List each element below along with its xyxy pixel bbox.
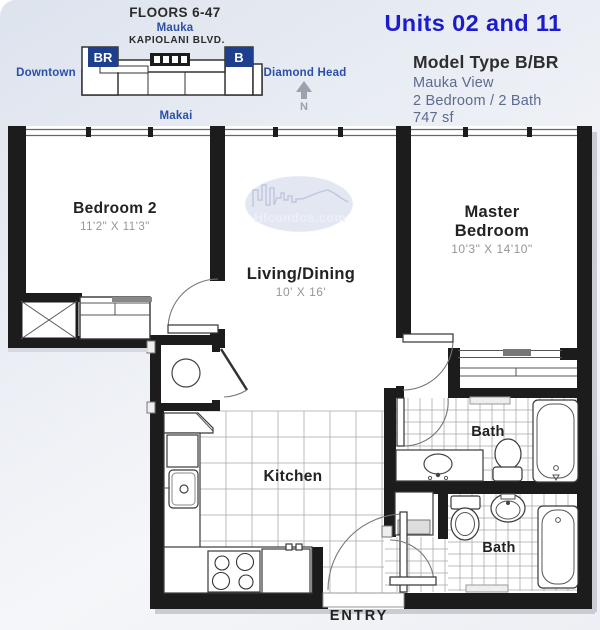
north-label: N xyxy=(300,101,308,113)
closet-slider-panel xyxy=(112,297,152,302)
bed-bath-line: 2 Bedroom / 2 Bath xyxy=(413,93,542,109)
bedroom2-closets xyxy=(21,297,152,339)
bath-lower-label: Bath xyxy=(482,540,515,556)
vanity-faucet-icon xyxy=(436,473,440,477)
sink-drain-icon xyxy=(506,501,510,505)
building-locator: FLOORS 6-47 Mauka KAPIOLANI BLVD. Downto… xyxy=(16,5,346,122)
toilet-tank xyxy=(493,467,522,481)
bedroom2-label: Bedroom 2 xyxy=(73,200,157,217)
master-door-leaf xyxy=(403,334,453,342)
watermark-text: HIcondos.com xyxy=(254,211,346,225)
window-band xyxy=(26,126,578,139)
area-line: 747 sf xyxy=(413,110,454,126)
bath-top-wall xyxy=(448,388,578,398)
toilet-tank xyxy=(451,496,480,509)
second-bath-door-leaf xyxy=(390,577,436,585)
bottom-wall-right xyxy=(404,593,592,609)
dishwasher xyxy=(262,549,310,593)
downtown-label: Downtown xyxy=(16,67,76,79)
entry-threshold xyxy=(323,593,404,607)
floorplan-page: HIcondos.com Bedroom 2 11'2" X 11'3" Liv… xyxy=(0,0,600,630)
building-step xyxy=(100,66,148,73)
bedroom2-door-leaf xyxy=(168,325,218,333)
second-bath-left-wall xyxy=(438,494,448,539)
master-label-line1: Master xyxy=(465,203,520,221)
street-label: KAPIOLANI BLVD. xyxy=(129,35,225,46)
bedroom2-dims: 11'2" X 11'3" xyxy=(80,221,150,233)
watermark: HIcondos.com xyxy=(244,175,354,233)
north-arrow-icon xyxy=(296,81,312,99)
door-jamb-hardware xyxy=(382,526,392,537)
bedroom2-living-wall-upper xyxy=(210,126,225,281)
door-jamb-hardware xyxy=(147,341,155,353)
units-title: Units 02 and 11 xyxy=(384,10,561,36)
right-shadow xyxy=(592,132,597,612)
master-dims: 10'3" X 14'10" xyxy=(451,242,533,256)
entry-label: ENTRY xyxy=(330,608,389,624)
master-closet-left-wall xyxy=(448,348,460,390)
toilet-bowl-icon xyxy=(495,439,521,469)
mauka-label: Mauka xyxy=(157,22,194,34)
bottom-wall-left xyxy=(150,593,328,609)
dishwasher-control xyxy=(286,544,292,550)
unit-b-label: B xyxy=(234,50,243,65)
model-type: Model Type B/BR xyxy=(413,52,559,72)
threshold-plate xyxy=(323,593,404,607)
bath-upper-label: Bath xyxy=(471,424,504,440)
bathtub xyxy=(538,506,578,588)
floorplan-canvas: HIcondos.com Bedroom 2 11'2" X 11'3" Liv… xyxy=(0,0,600,630)
bath-shelf xyxy=(466,585,508,592)
door-jamb-hardware xyxy=(147,402,155,413)
master-closet-right-cap xyxy=(560,348,578,360)
left-shadow xyxy=(8,348,148,352)
base-cabinet xyxy=(167,435,198,467)
makai-label: Makai xyxy=(160,110,193,122)
right-wall xyxy=(577,126,592,609)
sink-faucet-icon xyxy=(501,494,515,499)
bath-shelf xyxy=(470,397,510,404)
laundry-closet xyxy=(161,345,220,403)
dishwasher-control xyxy=(296,544,302,550)
master-label-line2: Bedroom xyxy=(455,222,530,240)
building-right-wing xyxy=(253,64,262,95)
living-master-wall xyxy=(396,126,411,338)
floors-label: FLOORS 6-47 xyxy=(129,5,220,20)
kitchen-label: Kitchen xyxy=(264,468,323,485)
laundry-interior xyxy=(161,345,212,403)
title-block: Units 02 and 11 Model Type B/BR Mauka Vi… xyxy=(384,10,561,126)
window-wall xyxy=(26,126,578,139)
living-master-wall-stub xyxy=(396,386,404,398)
living-dims: 10' X 16' xyxy=(276,285,326,299)
kitchen-sink xyxy=(169,470,198,508)
master-closet-slider xyxy=(503,349,531,356)
laundry-door-gap xyxy=(212,352,220,400)
view-line: Mauka View xyxy=(413,75,494,91)
unit-br-label: BR xyxy=(94,50,113,65)
master-bath-door-leaf xyxy=(397,398,404,446)
living-label: Living/Dining xyxy=(247,265,355,283)
bathtub xyxy=(533,400,578,482)
diamond-head-label: Diamond Head xyxy=(264,67,347,79)
